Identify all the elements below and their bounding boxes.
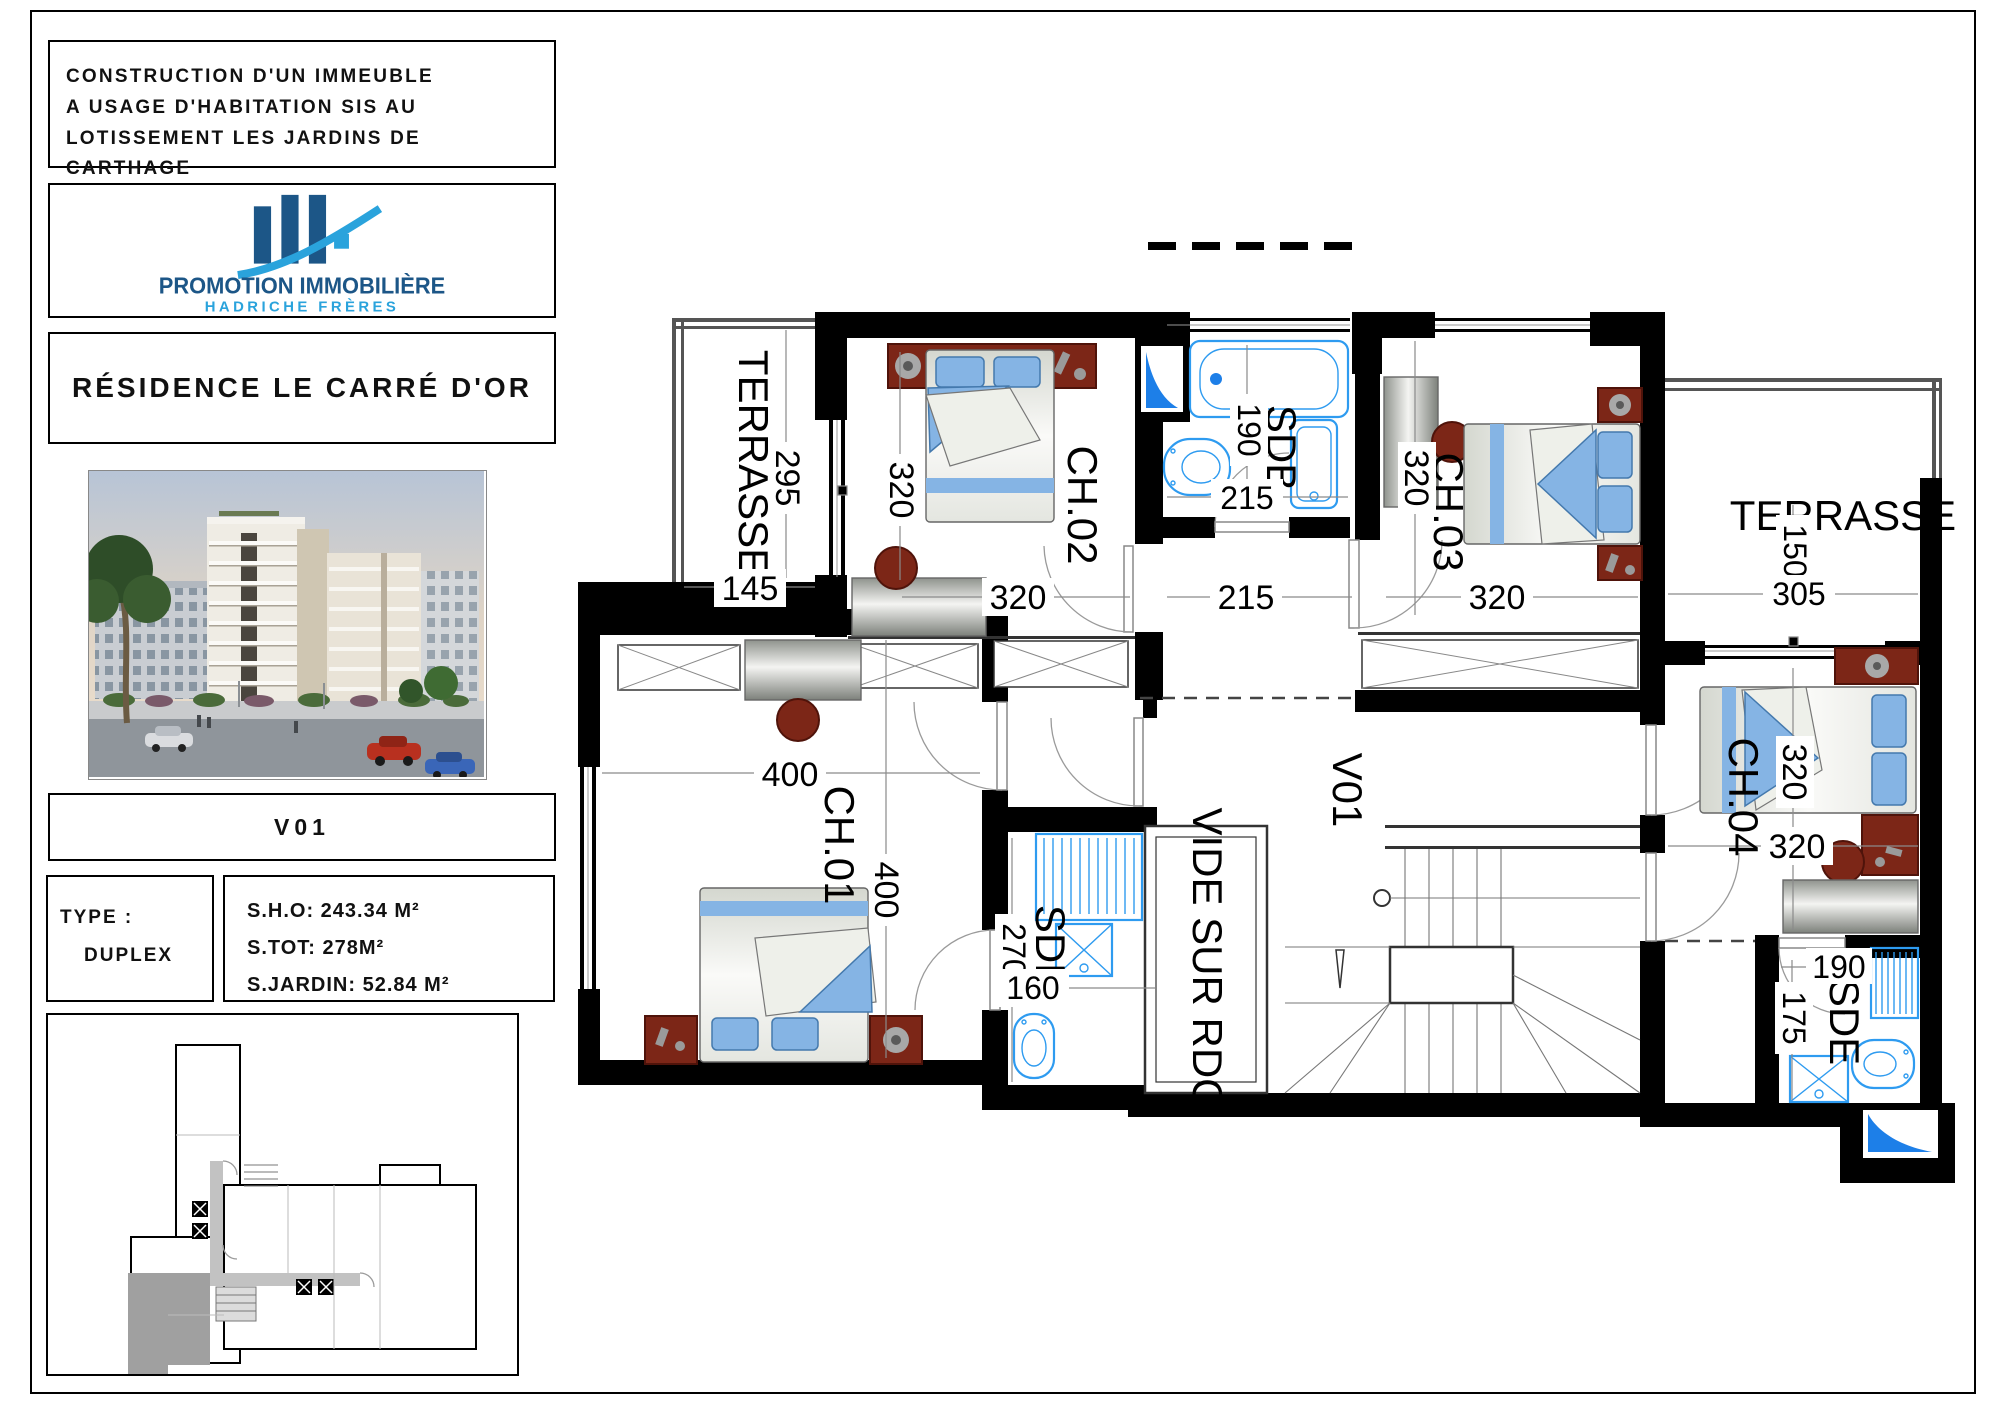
pillow: [712, 1018, 758, 1050]
chair: [777, 699, 819, 741]
dim-sde-right-depth: 175: [1776, 991, 1812, 1044]
door-hall-east: [1646, 853, 1739, 941]
staircase: [1285, 825, 1640, 1093]
dim-ch01-depth: 400: [867, 862, 905, 919]
toilet: [1014, 1014, 1054, 1078]
dim-ch04-depth: 320: [1775, 744, 1813, 801]
pillow: [772, 1018, 818, 1050]
dim-terrasse-right-depth: 150: [1777, 524, 1813, 577]
stair-landing: [1390, 947, 1513, 1003]
floor-plan: TERRASSE CH.02 SDB CH.03 TERRASSE CH.04 …: [0, 0, 2000, 1415]
desk: [852, 578, 986, 636]
nightstand: [645, 1016, 697, 1064]
desk: [1783, 880, 1918, 933]
label-v01: V01: [1324, 753, 1371, 828]
dim-terrasse-left-width: 145: [722, 570, 779, 608]
door-sde-mid: [915, 930, 1000, 1010]
door-ch01: [914, 702, 1007, 790]
dim-hall-width: 215: [1218, 579, 1275, 617]
dim-sdb-width: 215: [1220, 480, 1273, 516]
dim-sde-mid-depth: 270: [996, 923, 1032, 976]
dim-ch04-width: 320: [1769, 828, 1826, 866]
dim-sdb-depth: 190: [1231, 403, 1267, 456]
dim-ch01-width: 400: [762, 756, 819, 794]
dim-ch03-width: 320: [1469, 579, 1526, 617]
pillow: [936, 357, 984, 387]
nightstand: [1862, 815, 1918, 875]
dim-terrasse-right-width: 305: [1772, 576, 1825, 612]
dim-sde-right-width: 190: [1812, 949, 1865, 985]
pillow: [1872, 695, 1906, 747]
stair-direction-arrow: [1336, 950, 1344, 988]
pillow: [1598, 486, 1632, 532]
pillow: [1872, 753, 1906, 805]
dim-terrasse-left-depth: 295: [768, 450, 806, 507]
dim-ch03-depth: 320: [1397, 450, 1435, 507]
plan-sheet: CONSTRUCTION D'UN IMMEUBLE A USAGE D'HAB…: [0, 0, 2000, 1415]
chair: [875, 547, 917, 589]
dimension-texts: 295 145 320 320 190 215 215 320 320 150 …: [714, 394, 1872, 1054]
label-ch01: CH.01: [816, 785, 863, 904]
nightstand: [1598, 546, 1642, 580]
pillow: [1598, 432, 1632, 478]
bath-niche-drain: [1141, 346, 1183, 412]
terrace-right-railing: [1665, 378, 1942, 478]
dim-sde-mid-width: 160: [1006, 970, 1059, 1006]
pillow: [994, 357, 1040, 387]
dresser: [745, 640, 861, 700]
dim-ch02-depth: 320: [882, 462, 920, 519]
bedroom1-furniture: [645, 640, 922, 1064]
label-ch02: CH.02: [1059, 445, 1106, 564]
dim-ch02-width: 320: [990, 579, 1047, 617]
label-terrasse-right: TERRASSE: [1730, 492, 1956, 539]
door-vestibule: [1051, 718, 1143, 806]
label-ch04: CH.04: [1720, 737, 1767, 856]
label-sde-right: SDE: [1821, 979, 1868, 1065]
label-vide-sur-rdc: VIDE SUR RDC: [1184, 807, 1231, 1108]
terrace-drain: [1863, 1110, 1938, 1158]
